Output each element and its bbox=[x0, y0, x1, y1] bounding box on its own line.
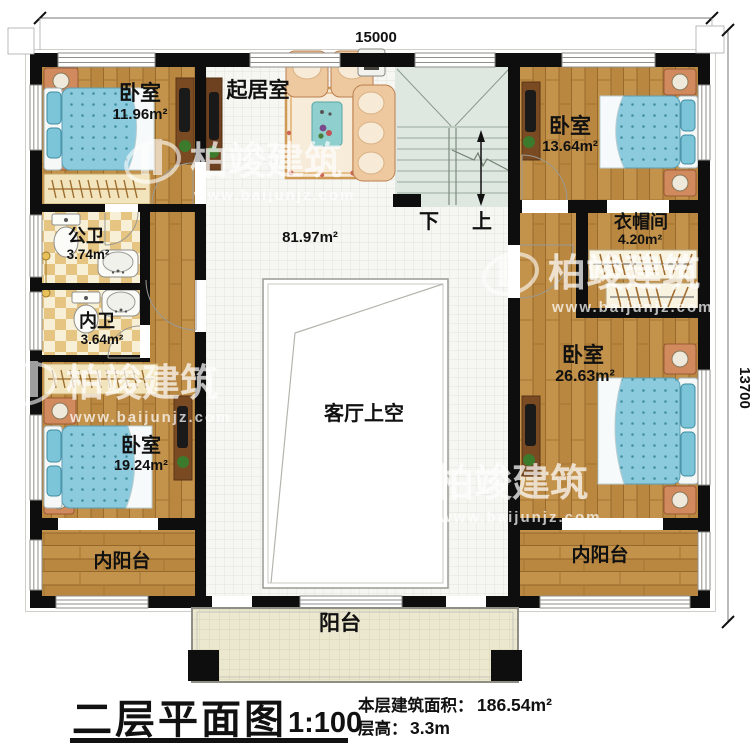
room-label-public-bathroom: 公卫 bbox=[68, 226, 104, 246]
watermark-brand: 柏竣建筑 bbox=[548, 253, 700, 295]
room-label-bedroom-bottom-left: 卧室 bbox=[121, 433, 161, 457]
window-icon bbox=[300, 596, 402, 608]
door-gap bbox=[195, 280, 206, 332]
wall-h4a bbox=[42, 518, 58, 530]
floor-height-label: 层高： bbox=[358, 718, 408, 738]
window-icon bbox=[30, 292, 42, 350]
stairs-down-label: 下 bbox=[419, 211, 439, 233]
lamp-icon bbox=[672, 74, 688, 90]
window-icon bbox=[698, 370, 710, 485]
lamp-icon bbox=[52, 403, 68, 419]
column bbox=[188, 650, 219, 681]
room-label-inner-balcony-left: 内阳台 bbox=[93, 549, 150, 572]
valve-icon bbox=[42, 252, 50, 260]
window-icon bbox=[415, 53, 495, 67]
dim-top-value: 15000 bbox=[355, 29, 397, 46]
room-area-bedroom-top-left: 11.96m² bbox=[112, 106, 167, 123]
door-gap bbox=[522, 200, 568, 213]
room-label-inner-balcony-right: 内阳台 bbox=[571, 543, 628, 566]
plant-icon bbox=[523, 136, 535, 148]
door-gap bbox=[140, 325, 150, 358]
window-icon bbox=[56, 596, 148, 608]
dim-bracket bbox=[696, 26, 724, 53]
room-label-bedroom-bottom-right: 卧室 bbox=[562, 343, 604, 367]
plant-icon bbox=[177, 456, 189, 468]
floor-area-label: 本层建筑面积： bbox=[358, 695, 474, 715]
title-underline bbox=[70, 738, 348, 743]
room-label-living-void: 客厅上空 bbox=[323, 401, 404, 425]
plan-title: 二层平面图 bbox=[72, 698, 287, 742]
window-icon bbox=[540, 596, 690, 608]
door-gap bbox=[212, 596, 252, 608]
watermark-brand: 柏竣建筑 bbox=[190, 141, 342, 183]
corridor-floor bbox=[150, 212, 195, 362]
tv-icon bbox=[525, 90, 536, 132]
tv-icon bbox=[179, 88, 190, 132]
room-label-bedroom-top-left: 卧室 bbox=[119, 81, 161, 105]
room-label-cloakroom: 衣帽间 bbox=[614, 211, 668, 232]
room-label-private-bathroom: 内卫 bbox=[79, 310, 115, 331]
room-area-bedroom-bottom-right: 26.63m² bbox=[555, 368, 615, 385]
double-bed-icon bbox=[600, 96, 698, 168]
living-void-area bbox=[263, 279, 448, 588]
wall-h4b bbox=[158, 518, 195, 530]
door-gap bbox=[105, 204, 138, 212]
tv-icon bbox=[209, 92, 219, 140]
room-area-public-bathroom: 3.74m² bbox=[67, 247, 110, 262]
hall-area-label: 81.97m² bbox=[282, 229, 338, 246]
floor-height-value: 3.3m bbox=[410, 718, 450, 738]
watermark-brand: 柏竣建筑 bbox=[66, 363, 218, 405]
lamp-icon bbox=[672, 351, 688, 367]
watermark-brand: 柏竣建筑 bbox=[436, 463, 588, 505]
room-label-bedroom-top-right: 卧室 bbox=[549, 114, 591, 138]
floor-area-value: 186.54m² bbox=[477, 695, 552, 715]
sofa-icon bbox=[353, 85, 395, 181]
window-icon bbox=[562, 53, 655, 67]
watermark-url: www.baijunjz.com bbox=[439, 509, 601, 526]
room-area-private-bathroom: 3.64m² bbox=[81, 332, 124, 347]
wall-stub-stairs bbox=[393, 194, 421, 207]
window-icon bbox=[58, 53, 155, 67]
door-gap bbox=[446, 596, 486, 608]
watermark-url: www.baijunjz.com bbox=[193, 187, 355, 204]
room-area-bedroom-top-right: 13.64m² bbox=[542, 138, 598, 155]
watermark-url: www.baijunjz.com bbox=[551, 299, 713, 316]
room-area-bedroom-bottom-left: 19.24m² bbox=[114, 458, 168, 474]
wall-h6b bbox=[663, 518, 698, 530]
lamp-icon bbox=[672, 492, 688, 508]
tv-icon bbox=[525, 404, 536, 446]
plan-scale: 1:100 bbox=[288, 707, 362, 739]
dim-right-value: 13700 bbox=[736, 367, 750, 409]
window-icon bbox=[698, 85, 710, 160]
room-area-cloakroom: 4.20m² bbox=[618, 231, 663, 247]
window-icon bbox=[30, 415, 42, 500]
floor-plan: 柏竣建筑 www.baijunjz.com 柏竣建筑 www.baijunjz.… bbox=[0, 0, 750, 745]
window-icon bbox=[30, 540, 42, 590]
window-icon bbox=[698, 532, 710, 590]
window-icon bbox=[250, 53, 340, 67]
dim-bracket bbox=[8, 28, 34, 54]
coffee-table bbox=[312, 102, 342, 146]
lamp-icon bbox=[53, 73, 69, 89]
lamp-icon bbox=[672, 175, 688, 191]
column bbox=[491, 650, 522, 681]
wall-h2 bbox=[30, 283, 140, 290]
stairs-up-label: 上 bbox=[472, 210, 492, 233]
window-icon bbox=[30, 215, 42, 277]
watermark-url: www.baijunjz.com bbox=[69, 409, 231, 426]
double-bed-icon bbox=[598, 378, 698, 484]
room-label-living-room: 起居室 bbox=[226, 78, 290, 102]
room-label-balcony: 阳台 bbox=[319, 611, 361, 635]
valve-icon bbox=[42, 289, 50, 297]
window-icon bbox=[30, 85, 42, 150]
